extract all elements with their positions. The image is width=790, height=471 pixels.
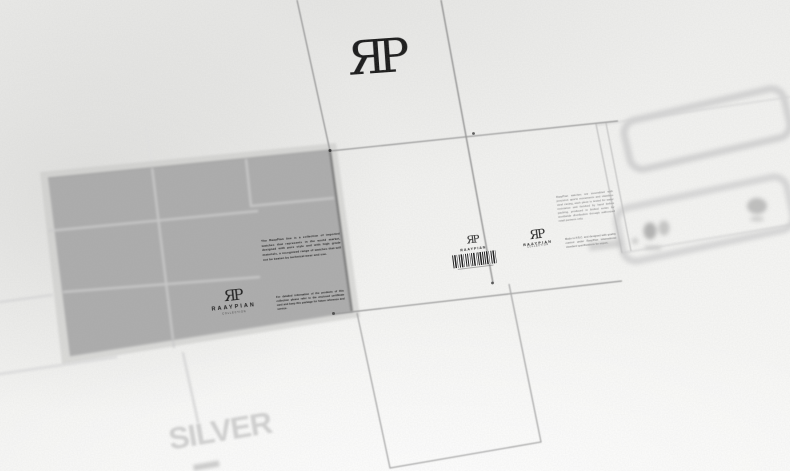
right-panel-paragraph-top: RaayPian watches are assembled with prec… (556, 190, 616, 224)
side-panel-brand-lockup: ЯP RAAYPIAN COLLECTION (509, 225, 565, 251)
right-flap-edge-inner (606, 123, 631, 251)
brand-monogram-large: ЯP (346, 32, 404, 83)
ghost-flap-lower (614, 175, 790, 264)
faint-creases (0, 97, 790, 422)
ghost-logo-icon (747, 198, 767, 214)
silver-watermark-text: SILVER (166, 405, 274, 458)
crease-horizontal-bottom (333, 281, 622, 314)
bottom-panel-outline (357, 284, 541, 468)
gray-panel-top-edge (48, 150, 330, 178)
ghost-dot (632, 238, 638, 244)
ghost-flap-shapes (614, 86, 790, 263)
crease-top-left (297, 0, 330, 151)
crease-horizontal-top (330, 121, 618, 151)
gray-panel-paragraph-main: The RaayPian line is a collection of imp… (261, 231, 342, 262)
packaging-dieline-photo: ЯP The RaayPian line is a collection of … (0, 0, 790, 471)
watermark-fragment-smudge (193, 460, 220, 470)
ghost-text-smudge (645, 246, 661, 250)
right-panel-paragraph-bottom: Made in P.R.C. and designed with quality… (565, 233, 617, 250)
ghost-logo-icon (644, 223, 657, 240)
gray-panel-bottom-edge (70, 312, 352, 356)
ghost-text-smudge (750, 217, 764, 222)
dieline-creases (297, 0, 631, 468)
ghost-flap-upper (621, 86, 790, 172)
front-panel-brand-lockup: ЯP RAAYPIAN (447, 233, 501, 271)
gray-panel-brand-lockup: ЯP RAAYPIAN COLLECTION (198, 285, 268, 317)
ghost-logo-icon (659, 221, 670, 236)
cut-marks (329, 132, 494, 315)
gray-panel-paragraph-secondary: For detailed information of the products… (276, 289, 345, 312)
